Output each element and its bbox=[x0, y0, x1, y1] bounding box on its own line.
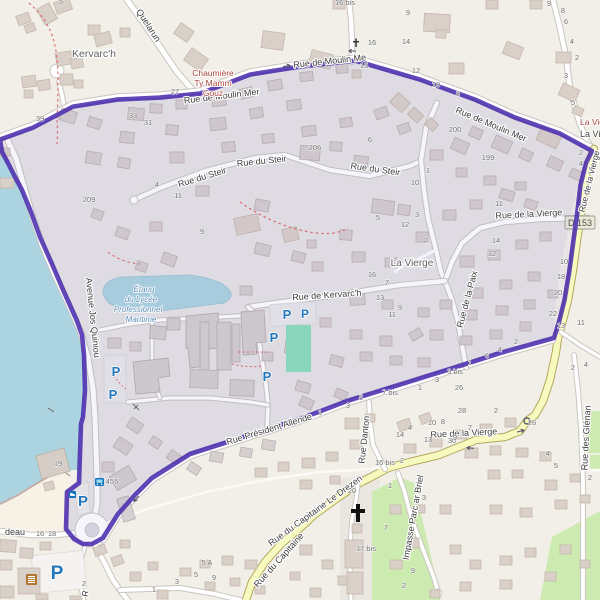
svg-text:7: 7 bbox=[468, 423, 472, 432]
svg-text:4: 4 bbox=[408, 423, 412, 432]
svg-text:199: 199 bbox=[482, 153, 495, 162]
svg-text:8: 8 bbox=[561, 6, 565, 15]
svg-text:deau: deau bbox=[5, 527, 25, 537]
svg-text:1: 1 bbox=[388, 481, 392, 490]
svg-text:9: 9 bbox=[398, 303, 402, 312]
svg-text:16 bis: 16 bis bbox=[335, 0, 355, 7]
svg-text:Chaumière: Chaumière bbox=[192, 68, 234, 78]
svg-text:14: 14 bbox=[402, 37, 410, 46]
svg-text:20: 20 bbox=[348, 486, 356, 495]
svg-text:6: 6 bbox=[485, 351, 489, 360]
svg-text:31: 31 bbox=[144, 118, 152, 127]
svg-text:3: 3 bbox=[346, 401, 350, 410]
svg-text:5: 5 bbox=[571, 98, 575, 107]
svg-text:206: 206 bbox=[309, 143, 322, 152]
svg-text:3: 3 bbox=[175, 577, 179, 586]
svg-text:13: 13 bbox=[424, 435, 432, 444]
svg-text:16: 16 bbox=[368, 270, 376, 279]
svg-text:10: 10 bbox=[411, 178, 419, 187]
svg-text:5: 5 bbox=[194, 570, 198, 579]
svg-text:P: P bbox=[51, 563, 64, 584]
svg-text:20: 20 bbox=[554, 288, 562, 297]
svg-text:9: 9 bbox=[547, 0, 551, 8]
svg-text:9: 9 bbox=[212, 573, 216, 582]
svg-text:Kervarc'h: Kervarc'h bbox=[72, 48, 116, 60]
svg-text:5: 5 bbox=[376, 213, 380, 222]
svg-text:7: 7 bbox=[385, 278, 389, 287]
svg-text:5: 5 bbox=[59, 0, 63, 6]
svg-text:P: P bbox=[109, 387, 118, 402]
svg-text:P: P bbox=[283, 307, 292, 322]
svg-text:2: 2 bbox=[494, 406, 498, 415]
svg-text:12: 12 bbox=[412, 66, 420, 75]
svg-text:La Vie: La Vie bbox=[580, 129, 600, 139]
svg-text:4: 4 bbox=[498, 345, 502, 354]
svg-text:2: 2 bbox=[571, 363, 575, 372]
svg-text:455: 455 bbox=[106, 477, 119, 486]
svg-text:5: 5 bbox=[359, 393, 363, 402]
svg-text:8: 8 bbox=[456, 89, 460, 98]
svg-text:Ty Mamm: Ty Mamm bbox=[194, 78, 231, 88]
svg-text:14: 14 bbox=[396, 430, 404, 439]
svg-text:26: 26 bbox=[528, 418, 536, 427]
svg-text:P: P bbox=[263, 369, 272, 384]
svg-text:Maritime: Maritime bbox=[126, 315, 157, 324]
svg-text:7 bis: 7 bis bbox=[382, 388, 398, 397]
svg-text:La Vierge: La Vierge bbox=[391, 258, 434, 269]
svg-text:2: 2 bbox=[588, 473, 592, 482]
svg-text:3: 3 bbox=[564, 71, 568, 80]
svg-text:3 bis: 3 bis bbox=[447, 367, 463, 376]
svg-text:13: 13 bbox=[557, 321, 565, 330]
svg-text:1: 1 bbox=[418, 383, 422, 392]
svg-text:39: 39 bbox=[36, 114, 44, 123]
svg-text:19: 19 bbox=[54, 459, 62, 468]
svg-text:5 A: 5 A bbox=[202, 558, 213, 567]
svg-text:9: 9 bbox=[406, 8, 410, 17]
svg-text:6: 6 bbox=[368, 135, 372, 144]
svg-text:18: 18 bbox=[557, 272, 565, 281]
svg-text:1: 1 bbox=[468, 358, 472, 367]
svg-text:4: 4 bbox=[570, 37, 574, 46]
svg-text:16 bis: 16 bis bbox=[375, 458, 395, 467]
svg-text:27: 27 bbox=[171, 87, 179, 96]
svg-text:11: 11 bbox=[495, 199, 503, 208]
svg-text:10: 10 bbox=[560, 257, 568, 266]
svg-text:7: 7 bbox=[384, 523, 388, 532]
svg-text:La Vie: La Vie bbox=[580, 117, 600, 127]
svg-text:11: 11 bbox=[174, 191, 182, 200]
svg-text:17 bis: 17 bis bbox=[356, 544, 376, 553]
svg-text:2: 2 bbox=[82, 579, 86, 588]
svg-text:Gouz: Gouz bbox=[203, 88, 223, 98]
svg-text:9: 9 bbox=[200, 227, 204, 236]
svg-text:18: 18 bbox=[48, 529, 56, 538]
svg-text:2: 2 bbox=[575, 53, 579, 62]
svg-text:33: 33 bbox=[129, 111, 137, 120]
svg-text:11: 11 bbox=[388, 310, 396, 319]
svg-text:P: P bbox=[270, 330, 279, 345]
svg-text:12: 12 bbox=[401, 220, 409, 229]
svg-text:16: 16 bbox=[36, 529, 44, 538]
svg-text:4: 4 bbox=[584, 360, 588, 369]
svg-text:12: 12 bbox=[488, 249, 496, 258]
svg-text:P: P bbox=[301, 307, 309, 321]
svg-text:28: 28 bbox=[458, 406, 466, 415]
svg-text:3: 3 bbox=[435, 375, 439, 384]
svg-text:2: 2 bbox=[423, 236, 427, 245]
svg-text:14: 14 bbox=[492, 236, 500, 245]
svg-text:10: 10 bbox=[428, 418, 436, 427]
svg-text:8: 8 bbox=[441, 417, 445, 426]
svg-text:209: 209 bbox=[83, 195, 96, 204]
svg-text:1: 1 bbox=[426, 166, 430, 175]
svg-text:P: P bbox=[112, 364, 121, 379]
svg-text:2: 2 bbox=[579, 148, 583, 157]
svg-text:26: 26 bbox=[455, 383, 463, 392]
svg-text:2: 2 bbox=[400, 456, 404, 465]
svg-text:200: 200 bbox=[449, 125, 462, 134]
svg-text:4: 4 bbox=[155, 180, 159, 189]
svg-text:22: 22 bbox=[549, 309, 557, 318]
svg-text:3: 3 bbox=[422, 493, 426, 502]
svg-text:13: 13 bbox=[376, 293, 384, 302]
svg-text:3: 3 bbox=[415, 210, 419, 219]
svg-text:9: 9 bbox=[453, 433, 457, 442]
svg-text:1: 1 bbox=[152, 585, 156, 594]
svg-text:2: 2 bbox=[514, 337, 518, 346]
svg-text:2: 2 bbox=[402, 581, 406, 590]
svg-text:1: 1 bbox=[318, 408, 322, 417]
svg-text:15: 15 bbox=[360, 61, 368, 70]
svg-text:10: 10 bbox=[432, 80, 440, 89]
svg-text:6: 6 bbox=[564, 17, 568, 26]
svg-text:5: 5 bbox=[554, 461, 558, 470]
svg-text:du Lycée: du Lycée bbox=[125, 295, 158, 304]
svg-text:4: 4 bbox=[546, 449, 550, 458]
svg-text:P: P bbox=[78, 493, 88, 510]
svg-text:Étang: Étang bbox=[134, 285, 155, 294]
svg-text:16: 16 bbox=[368, 38, 376, 47]
svg-text:Professionnel: Professionnel bbox=[114, 305, 163, 314]
svg-text:9: 9 bbox=[411, 566, 415, 575]
svg-text:11: 11 bbox=[577, 318, 585, 327]
svg-text:4: 4 bbox=[579, 159, 583, 168]
